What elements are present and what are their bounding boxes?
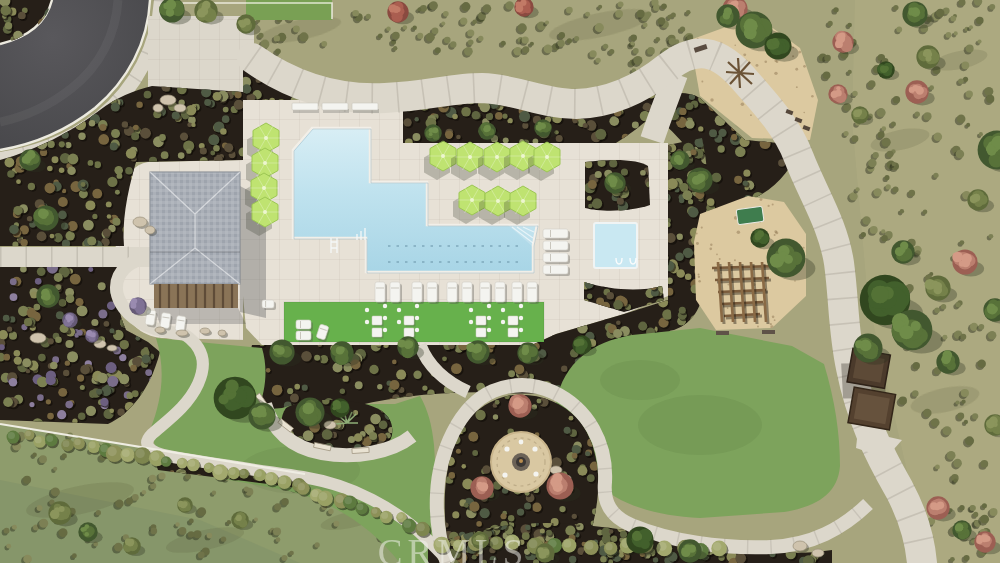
deck-table: [352, 103, 379, 113]
lounge-chair: [462, 282, 474, 304]
lounge-chair: [527, 282, 539, 304]
lounge-chair: [390, 282, 402, 304]
crmls-watermark: CRMLS: [378, 531, 528, 563]
log-climber: [712, 262, 774, 324]
lounge-chair: [375, 282, 387, 304]
lounge-chair: [447, 282, 459, 304]
aerial-site-plan: CRMLS: [0, 0, 1000, 563]
lounge-chair: [543, 241, 570, 252]
lounge-chair: [296, 331, 313, 342]
lounge-chair: [543, 253, 570, 264]
lounge-chair: [543, 265, 570, 276]
lounge-chair: [412, 282, 424, 304]
lounge-chair: [543, 229, 570, 240]
lounge-chair: [495, 282, 507, 304]
lounge-chair: [296, 320, 313, 331]
lounge-chair: [512, 282, 524, 304]
deck-table: [292, 103, 319, 113]
game-table: [736, 206, 764, 224]
lounge-chair: [427, 282, 439, 304]
lounge-chair: [480, 282, 492, 304]
fire-pit-plaza: [491, 432, 551, 492]
scene-svg: [0, 0, 1000, 563]
deck-table: [322, 103, 349, 113]
lounge-chair: [262, 300, 276, 310]
